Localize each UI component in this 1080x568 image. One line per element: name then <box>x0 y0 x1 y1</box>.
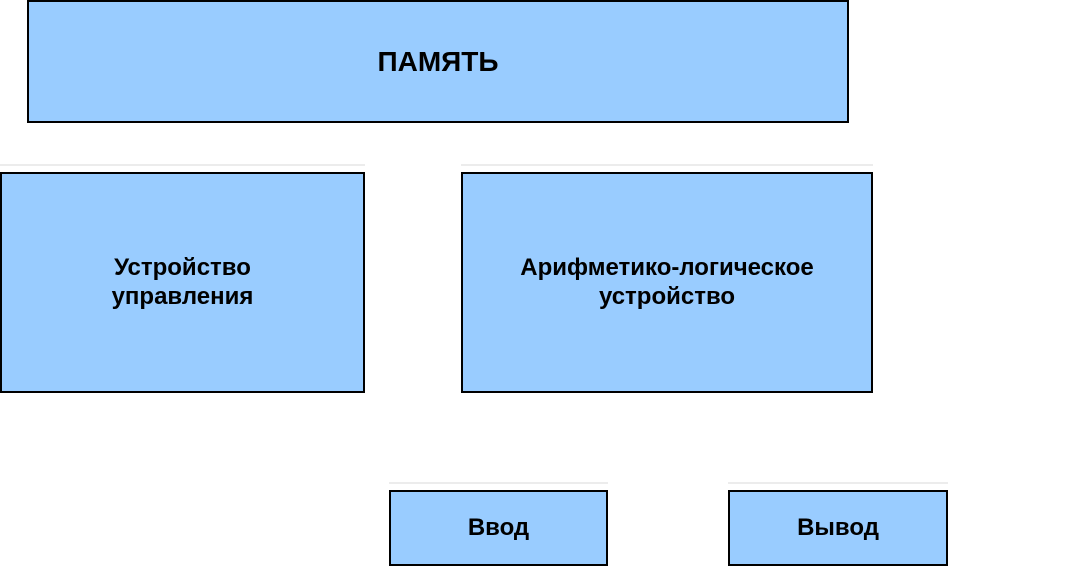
memory-box: ПАМЯТЬ <box>27 0 849 123</box>
alu-box: Арифметико-логическое устройство <box>461 172 873 393</box>
memory-label: ПАМЯТЬ <box>377 45 498 79</box>
diagram-canvas: ПАМЯТЬ Устройство управления Арифметико-… <box>0 0 1080 568</box>
alu-label: Арифметико-логическое устройство <box>520 254 813 312</box>
input-label: Ввод <box>468 514 529 543</box>
control-unit-label: Устройство управления <box>112 254 254 312</box>
control-unit-box: Устройство управления <box>0 172 365 393</box>
output-label: Вывод <box>797 514 879 543</box>
output-box: Вывод <box>728 490 948 566</box>
input-box: Ввод <box>389 490 608 566</box>
